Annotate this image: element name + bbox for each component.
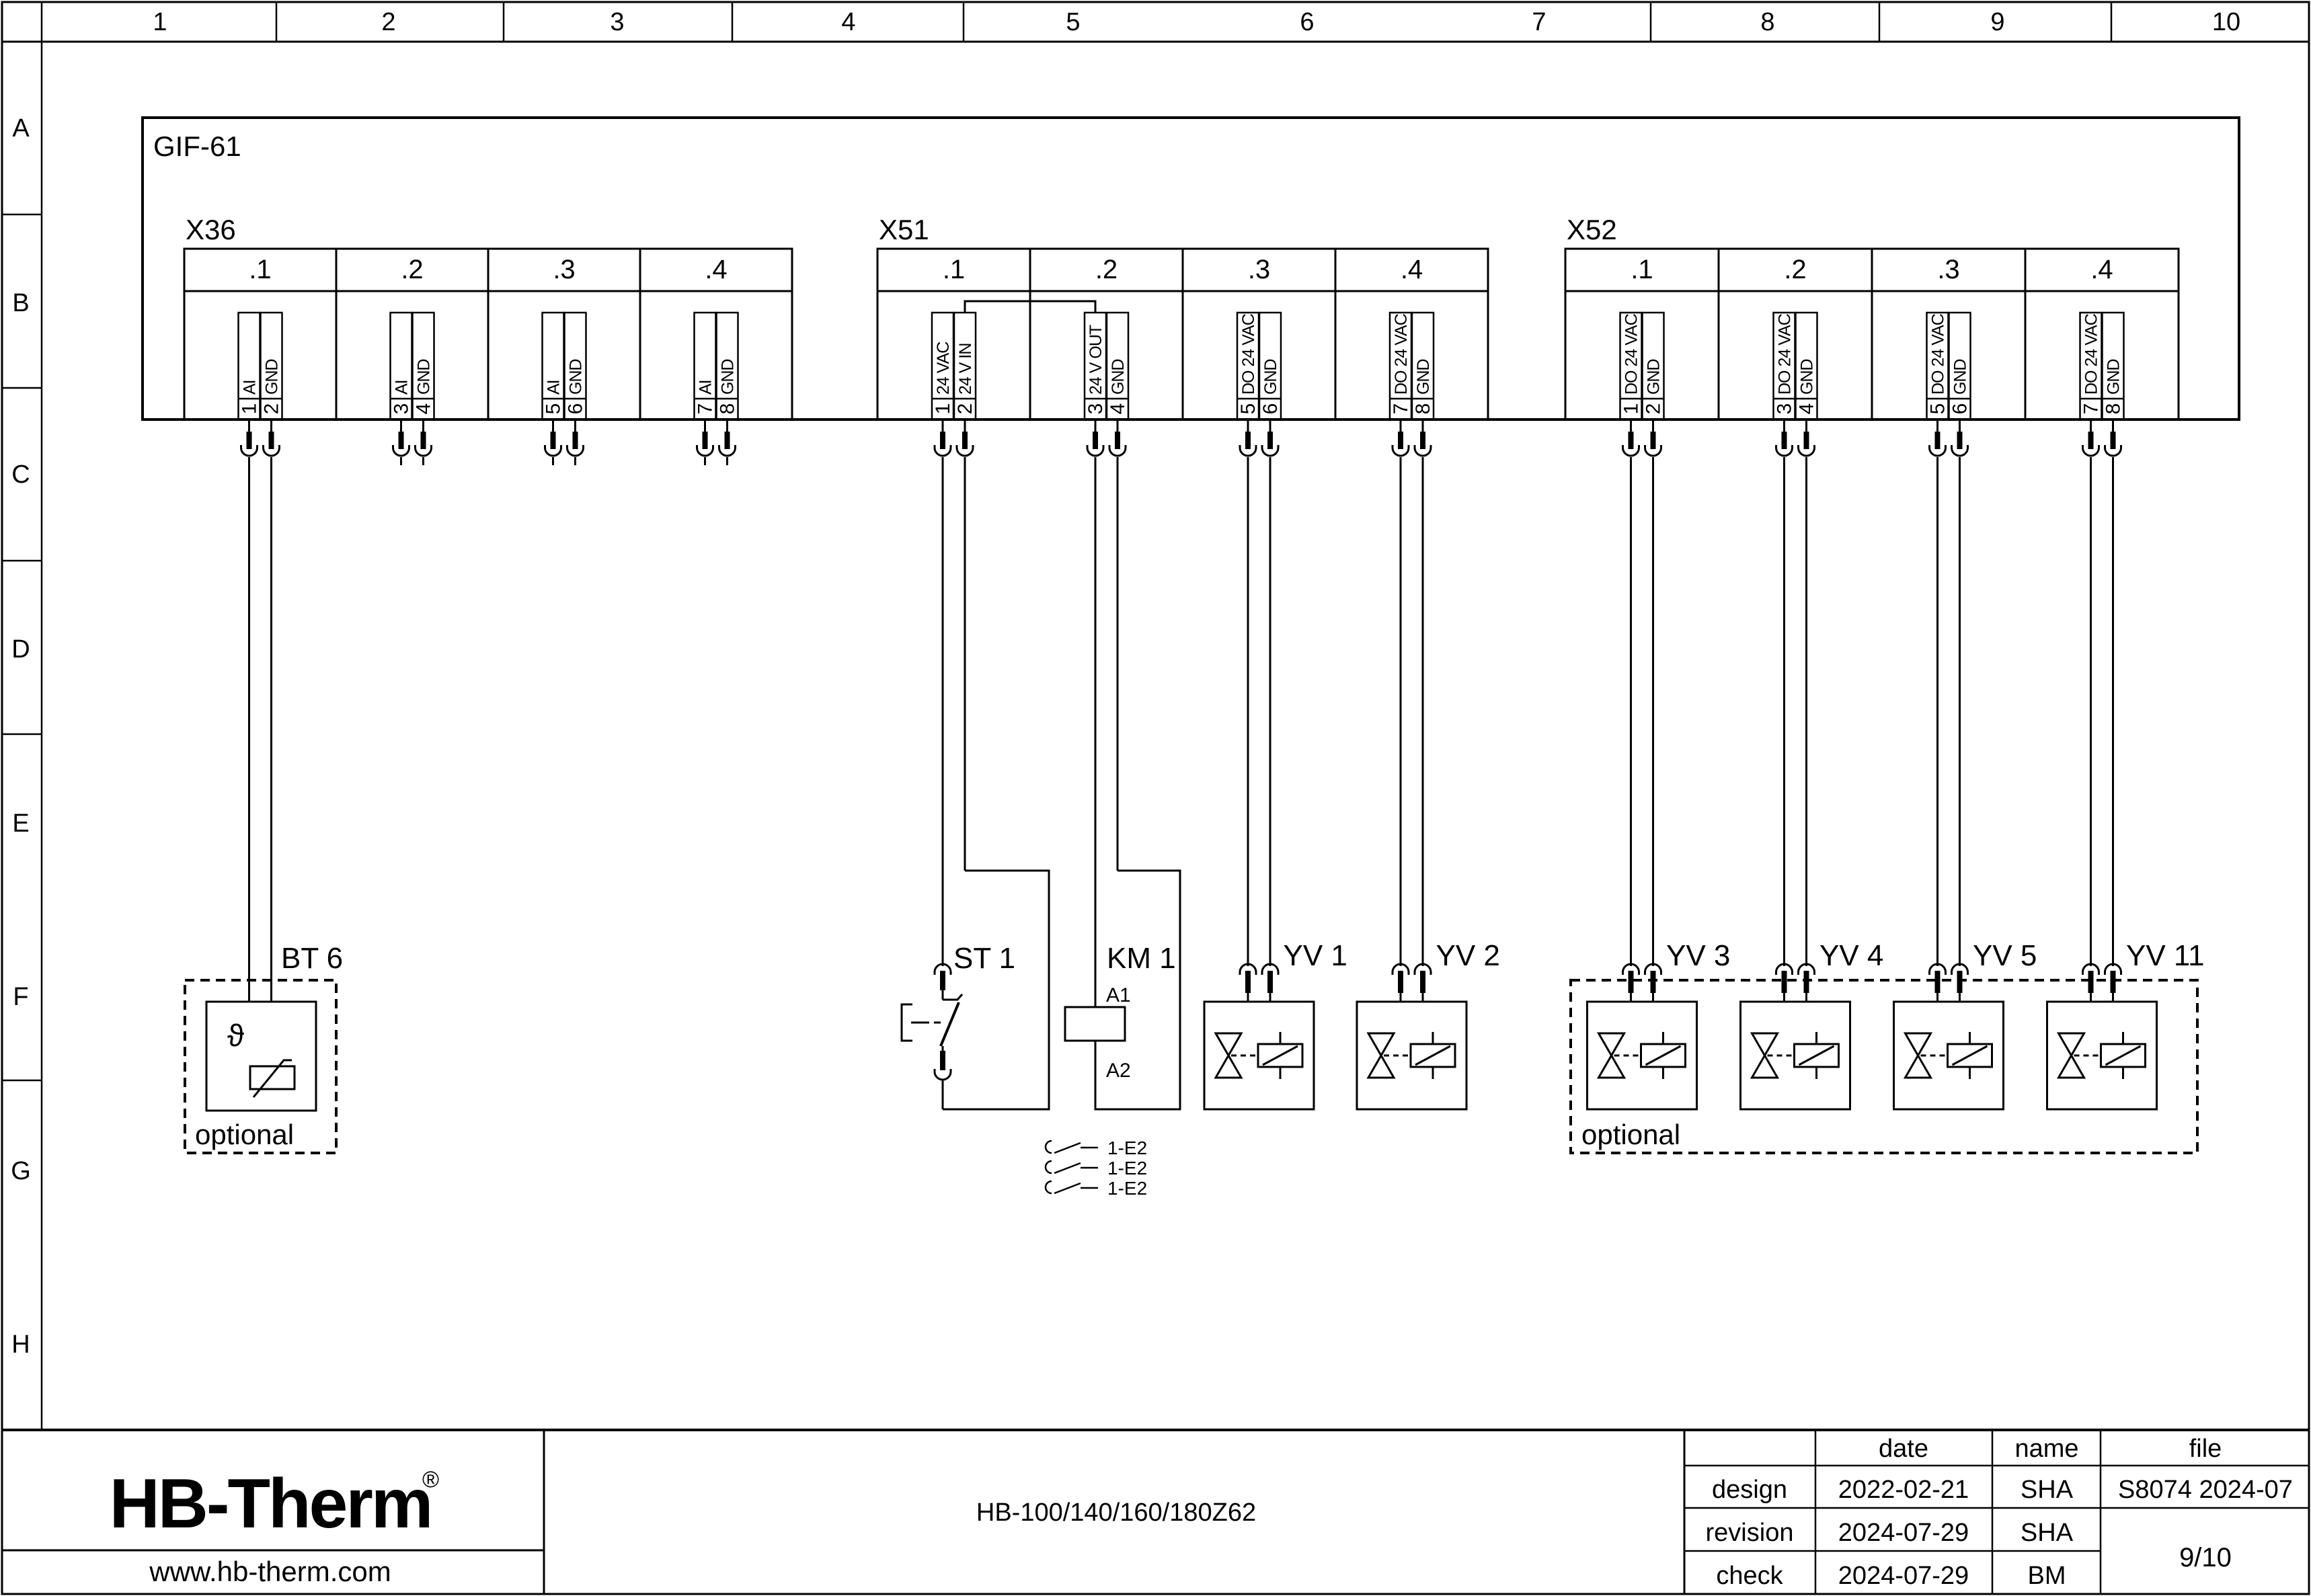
page-indicator: 9/10 — [2179, 1543, 2232, 1572]
components-layer: ϑ BT 6 optional ST 1 A1 A2 — [185, 871, 2205, 1199]
pin-number: 4 — [413, 403, 435, 415]
row-label-design: design — [1712, 1476, 1787, 1504]
valve-triangle-icon — [1599, 1033, 1624, 1055]
check-name: BM — [2028, 1562, 2066, 1590]
valve-triangle-icon — [1216, 1055, 1241, 1078]
row-label: H — [11, 1330, 30, 1359]
connector-X51: X51.124 VAC124 V IN2.224 V OUT3GND4.3DO … — [877, 214, 1488, 1007]
connector-groups: X36.1AI1GND2.2AI3GND4.3AI5GND6.4AI7GND8X… — [184, 214, 2179, 1007]
socket-icon — [935, 1069, 951, 1080]
registered-mark: ® — [422, 1467, 439, 1492]
valve-label: YV 1 — [1284, 939, 1347, 972]
bt6-label: BT 6 — [281, 942, 343, 975]
valve-label: YV 3 — [1666, 939, 1730, 972]
sensor-bt6: ϑ BT 6 optional — [185, 942, 343, 1153]
pin-number: 8 — [717, 403, 739, 415]
pin-signal-label: GND — [2105, 359, 2123, 395]
connector-label: X51 — [879, 214, 929, 245]
row-label-check: check — [1716, 1562, 1783, 1590]
pin-number: 7 — [2080, 403, 2103, 415]
column-label: 6 — [1300, 8, 1314, 36]
solenoid-valves: YV 1YV 2YV 3YV 4YV 5YV 11 — [1204, 939, 2205, 1109]
pin-signal-label: AI — [545, 380, 563, 395]
contact-ref-label: 1-E2 — [1107, 1158, 1147, 1179]
pin-number: 6 — [1259, 403, 1282, 415]
valves-optional-label: optional — [1581, 1119, 1680, 1150]
revision-name: SHA — [2021, 1519, 2074, 1547]
contact-socket-icon — [1046, 1181, 1052, 1193]
section-label: .3 — [553, 255, 575, 284]
pin-number: 8 — [1412, 403, 1434, 415]
file-value: S8074 2024-07 — [2118, 1476, 2293, 1504]
return-wire — [943, 871, 1049, 1109]
pin-number: 3 — [1774, 403, 1796, 415]
connector-X36: X36.1AI1GND2.2AI3GND4.3AI5GND6.4AI7GND8 — [184, 214, 792, 1002]
valve-triangle-icon — [2059, 1055, 2084, 1078]
pin-number: 3 — [1085, 403, 1107, 415]
pin-number: 8 — [2103, 403, 2125, 415]
section-label: .4 — [1401, 255, 1423, 284]
valve-triangle-icon — [1599, 1055, 1624, 1078]
pin-number: 5 — [543, 403, 565, 415]
st1-label: ST 1 — [953, 942, 1015, 975]
section-label: .4 — [2090, 255, 2113, 284]
schematic-page: 12345678910 ABCDEFGH GIF-61 X36.1AI1GND2… — [0, 0, 2311, 1596]
contact-blade — [1054, 1143, 1081, 1153]
valve-yv11: YV 11 — [2047, 939, 2205, 1109]
pin-signal-label: GND — [1109, 359, 1128, 395]
column-label: 5 — [1066, 8, 1080, 36]
solenoid-diagonal — [1646, 1046, 1681, 1065]
valve-triangle-icon — [1906, 1055, 1931, 1078]
row-label: G — [11, 1157, 31, 1185]
col-header-name: name — [2014, 1435, 2078, 1463]
section-label: .2 — [1095, 255, 1118, 284]
row-label: A — [12, 114, 30, 143]
pin-signal-label: GND — [263, 359, 282, 395]
pin-number: 2 — [1643, 403, 1665, 415]
gif61-label: GIF-61 — [153, 130, 241, 162]
valve-yv1: YV 1 — [1204, 939, 1347, 1109]
row-label: F — [13, 983, 28, 1011]
theta-symbol: ϑ — [227, 1018, 244, 1053]
valve-yv4: YV 4 — [1741, 939, 1884, 1109]
pin-number: 7 — [1390, 403, 1412, 415]
solenoid-diagonal — [1799, 1046, 1834, 1065]
valve-triangle-icon — [1216, 1033, 1241, 1055]
contact-blade — [1054, 1183, 1081, 1193]
contact-blade — [1054, 1163, 1081, 1173]
coil-terminal-a2: A2 — [1106, 1060, 1131, 1082]
contact-blade — [941, 1002, 959, 1046]
row-label: D — [11, 635, 30, 664]
connector-label: X52 — [1567, 214, 1617, 245]
contact-socket-icon — [1046, 1141, 1052, 1153]
valve-triangle-icon — [1368, 1055, 1394, 1078]
km1-contact-refs: 1-E21-E21-E2 — [1046, 1138, 1147, 1199]
check-date: 2024-07-29 — [1838, 1562, 1969, 1590]
contactor-km1: A1 A2 KM 1 1-E21-E21-E2 — [1046, 871, 1180, 1199]
column-label: 7 — [1532, 8, 1546, 36]
drawing-title: HB-100/140/160/180Z62 — [976, 1499, 1256, 1527]
pin-number: 5 — [1927, 403, 1949, 415]
valve-label: YV 4 — [1819, 939, 1883, 972]
pin-number: 4 — [1796, 403, 1818, 415]
pin-signal-label: GND — [1951, 359, 1970, 395]
pin-number: 2 — [954, 403, 976, 415]
column-label: 2 — [381, 8, 395, 36]
pin-signal-label: GND — [415, 359, 434, 395]
title-block: HB-Therm ® www.hb-therm.com HB-100/140/1… — [2, 1430, 2309, 1594]
gif61-box — [143, 118, 2239, 420]
section-label: .3 — [1248, 255, 1270, 284]
revision-date: 2024-07-29 — [1838, 1519, 1969, 1547]
pin-signal-label: DO 24 VAC — [1776, 313, 1795, 395]
section-label: .4 — [705, 255, 727, 284]
pin-number: 1 — [932, 403, 954, 415]
valve-triangle-icon — [1906, 1033, 1931, 1055]
valve-label: YV 11 — [2126, 939, 2205, 972]
contact-socket-icon — [1046, 1161, 1052, 1173]
design-date: 2022-02-21 — [1838, 1476, 1969, 1504]
section-label: .2 — [1784, 255, 1806, 284]
km1-label: KM 1 — [1107, 942, 1176, 975]
col-header-date: date — [1879, 1435, 1928, 1463]
thermal-actuator-icon — [902, 1004, 912, 1041]
thermistor-icon — [250, 1066, 295, 1089]
pin-number: 4 — [1107, 403, 1129, 415]
pin-signal-label: AI — [393, 380, 412, 395]
hb-therm-logo: HB-Therm — [110, 1465, 432, 1543]
col-header-file: file — [2189, 1435, 2222, 1463]
valve-yv3: YV 3 — [1588, 939, 1731, 1109]
bt6-box — [206, 1002, 316, 1111]
valve-triangle-icon — [2059, 1033, 2084, 1055]
valve-triangle-icon — [1368, 1033, 1394, 1055]
column-ruler: 12345678910 — [153, 2, 2240, 42]
pin-number: 3 — [391, 403, 413, 415]
section-label: .2 — [401, 255, 423, 284]
column-label: 1 — [153, 8, 167, 36]
section-label: .3 — [1937, 255, 1959, 284]
column-label: 3 — [610, 8, 624, 36]
sheet-frame: 12345678910 ABCDEFGH — [2, 2, 2309, 1594]
pin-signal-label: 24 VAC — [934, 342, 953, 395]
column-label: 8 — [1760, 8, 1774, 36]
row-label: E — [12, 809, 29, 838]
valve-triangle-icon — [1752, 1033, 1778, 1055]
solenoid-diagonal — [1263, 1046, 1298, 1065]
pin-number: 7 — [695, 403, 717, 415]
pin-signal-label: GND — [1798, 359, 1817, 395]
pin-signal-label: DO 24 VAC — [1622, 313, 1641, 395]
pin-signal-label: DO 24 VAC — [1929, 313, 1948, 395]
column-label: 10 — [2212, 8, 2240, 36]
gif61-module: GIF-61 X36.1AI1GND2.2AI3GND4.3AI5GND6.4A… — [143, 118, 2239, 1007]
column-label: 4 — [841, 8, 855, 36]
pin-number: 1 — [239, 403, 261, 415]
pin-number: 6 — [565, 403, 587, 415]
pin-signal-label: GND — [1645, 359, 1663, 395]
pin-number: 1 — [1620, 403, 1643, 415]
contact-ref-label: 1-E2 — [1107, 1178, 1147, 1199]
section-label: .1 — [249, 255, 271, 284]
contact-anvil — [943, 994, 962, 1000]
pin-signal-label: DO 24 VAC — [2082, 313, 2101, 395]
connector-label: X36 — [186, 214, 236, 245]
pin-signal-label: AI — [697, 380, 715, 395]
pin-signal-label: AI — [241, 380, 260, 395]
pin-number: 2 — [261, 403, 283, 415]
solenoid-diagonal — [1415, 1046, 1450, 1065]
contact-ref-label: 1-E2 — [1107, 1138, 1147, 1158]
sheet-border — [2, 2, 2309, 1594]
pin-number: 5 — [1237, 403, 1259, 415]
solenoid-diagonal — [1953, 1046, 1988, 1065]
pin-signal-label: 24 V OUT — [1087, 325, 1105, 395]
column-label: 9 — [1990, 8, 2004, 36]
row-ruler: ABCDEFGH — [2, 114, 42, 1359]
row-label: B — [12, 289, 29, 317]
valve-yv5: YV 5 — [1894, 939, 2037, 1109]
valve-label: YV 5 — [1973, 939, 2037, 972]
valve-label: YV 2 — [1436, 939, 1500, 972]
valve-triangle-icon — [1752, 1055, 1778, 1078]
pin-signal-label: GND — [1261, 359, 1280, 395]
contactor-coil — [1065, 1007, 1125, 1041]
schematic-sheet: 12345678910 ABCDEFGH GIF-61 X36.1AI1GND2… — [0, 0, 2311, 1596]
thermostat-st1: ST 1 — [902, 871, 1049, 1109]
pin-signal-label: GND — [567, 359, 586, 395]
design-name: SHA — [2021, 1476, 2074, 1504]
pin-signal-label: GND — [719, 359, 738, 395]
row-label: C — [11, 461, 30, 489]
pin-signal-label: GND — [1414, 359, 1433, 395]
connector-X52: X52.1DO 24 VAC1GND2.2DO 24 VAC3GND4.3DO … — [1565, 214, 2179, 966]
pin-signal-label: DO 24 VAC — [1392, 313, 1411, 395]
bt6-optional-label: optional — [195, 1119, 294, 1150]
section-label: .1 — [943, 255, 965, 284]
pin-signal-label: DO 24 VAC — [1239, 313, 1258, 395]
solenoid-diagonal — [2106, 1046, 2141, 1065]
pin-signal-label: 24 V IN — [956, 344, 975, 395]
section-label: .1 — [1631, 255, 1653, 284]
coil-terminal-a1: A1 — [1106, 984, 1131, 1006]
pin-number: 6 — [1949, 403, 1971, 415]
row-label-revision: revision — [1706, 1519, 1794, 1547]
website-link: www.hb-therm.com — [149, 1556, 391, 1587]
valve-yv2: YV 2 — [1357, 939, 1500, 1109]
